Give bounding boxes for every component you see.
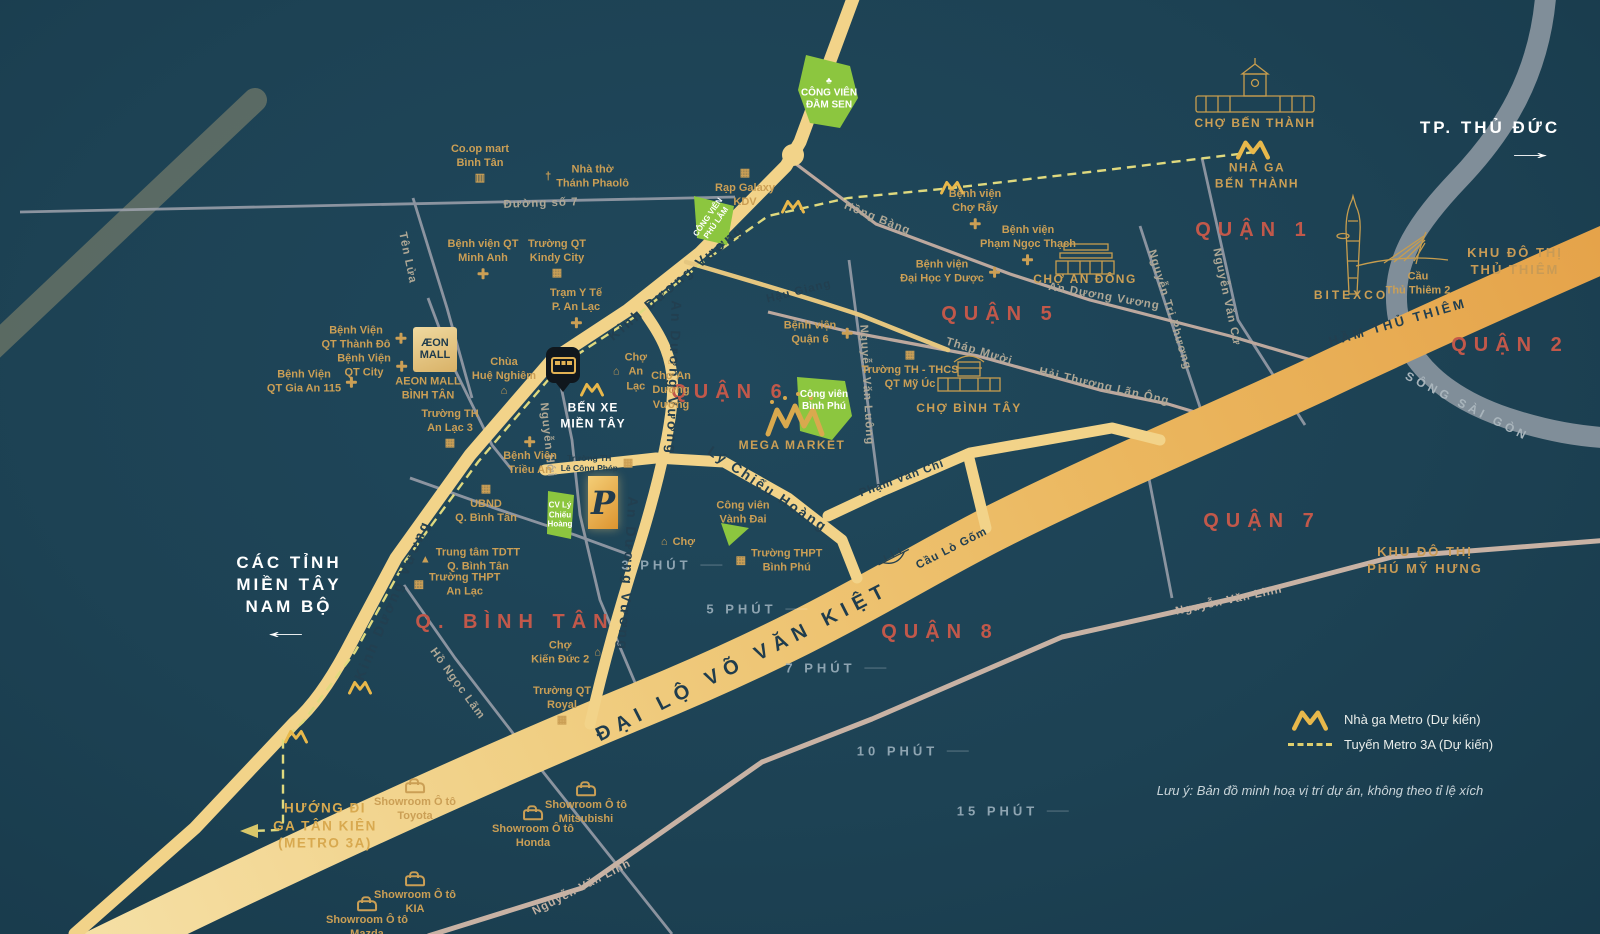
road-cau-lo-gom-text: Cầu Lò Gốm	[914, 525, 991, 574]
poi-mega-market-text: MEGA MARKET	[739, 438, 846, 454]
district-quan-8: QUẬN 8	[881, 619, 999, 645]
dir-huong-di-ga-tan-kien: HƯỚNG ĐIGA TÂN KIÊN(METRO 3A)	[273, 800, 377, 853]
district-quan-7-text: QUẬN 7	[1203, 508, 1321, 534]
poi-truong-qt-royal-text: Royal	[533, 699, 591, 713]
district-quan-7: QUẬN 7	[1203, 508, 1321, 534]
arrow-left-icon: ←	[258, 623, 320, 642]
legend-metro-station: Nhà ga Metro (Dự kiến)	[1288, 708, 1493, 731]
minute-15: 15 PHÚT	[957, 804, 1069, 821]
cross-icon	[989, 267, 1000, 278]
road-ten-lua: Tên Lửa	[394, 231, 420, 285]
minute-10-text: 10 PHÚT	[857, 744, 969, 761]
river-song-sai-gon-text: SÔNG SÀI GÒN	[1402, 369, 1531, 445]
poi-truong-thpt-an-lac-text: An Lạc	[429, 585, 500, 599]
poi-bitexco: BITEXCO	[1314, 288, 1388, 304]
poi-benh-vien-trieu-an: Bệnh ViệnTriều An	[503, 436, 557, 478]
poi-cho: ⌂Chợ	[661, 535, 695, 549]
poi-tram-y-te-p-an-lac-text: Trạm Y Tế	[550, 286, 602, 300]
district-quan-5: QUẬN 5	[941, 301, 1059, 327]
poi-coop-mart-binh-tan-text: Co.op mart	[451, 142, 509, 156]
poi-truong-thpt-binh-phu-text: Trường THPT	[751, 547, 822, 561]
cart-icon: ▥	[475, 173, 485, 184]
poi-cho-text: Chợ	[673, 535, 695, 549]
poi-chua-hue-nghiem-text: Huệ Nghiêm	[472, 370, 536, 384]
poi-truong-th-an-lac-3-text: Trường TH	[421, 407, 478, 421]
poi-cho-ben-thanh: CHỢ BẾN THÀNH	[1194, 116, 1315, 132]
cross-icon	[396, 333, 407, 344]
dir-huong-di-ga-tan-kien-text: GA TÂN KIÊN	[273, 817, 377, 835]
dir-huong-di-ga-tan-kien-text: HƯỚNG ĐI	[273, 800, 377, 818]
park-label-binh-phu-text: Bình Phú	[800, 401, 848, 413]
poi-cho-an-lac-text: Chợ	[625, 351, 647, 365]
car-icon	[576, 785, 596, 796]
location-map: QUẬN 1QUẬN 2QUẬN 5QUẬN 6QUẬN 7QUẬN 8Q. B…	[0, 0, 1600, 934]
road-nguyen-van-linh-south: Nguyễn Văn Linh	[530, 857, 634, 920]
river-song-sai-gon: SÔNG SÀI GÒN	[1402, 369, 1531, 445]
poi-benh-vien-qt-minh-anh-text: Bệnh viện QT	[448, 237, 519, 251]
poi-showroom-mazda: Showroom Ô tôMazda	[326, 894, 408, 934]
poi-benh-vien-qt-gia-an-115-text: QT Gia An 115	[267, 382, 341, 396]
road-duong-so-7: Đường số 7	[503, 195, 579, 213]
poi-cho-kien-duc-2-text: Chợ	[531, 639, 589, 653]
poi-truong-thpt-binh-phu: ▦Trường THPTBình Phú	[736, 547, 823, 576]
district-quan-8-text: QUẬN 8	[881, 619, 999, 645]
district-q-binh-tan-text: Q. BÌNH TÂN	[415, 609, 614, 635]
poi-cho-an-duong-vuong-text: Vương	[651, 398, 691, 412]
school-icon: ▦	[557, 715, 567, 726]
poi-truong-th-thcs-qt-my-uc-text: Trường TH - THCS	[861, 363, 958, 377]
building-icon: ▦	[481, 484, 491, 495]
aeon-logo-text: ÆON	[421, 338, 449, 350]
area-thu-thiem-text: THỦ THIÊM	[1467, 262, 1563, 279]
metro-station-icon	[1288, 708, 1332, 731]
car-icon	[405, 875, 425, 886]
poi-nha-ga-ben-thanh: NHÀ GABẾN THÀNH	[1215, 160, 1299, 191]
cross-icon	[969, 218, 980, 229]
park-label-dam-sen-text: CÔNG VIÊN	[801, 88, 857, 100]
poi-benh-vien-trieu-an-text: Bệnh Viện	[503, 449, 557, 463]
poi-chua-hue-nghiem: ChùaHuệ Nghiêm⌂	[472, 355, 536, 397]
poi-ubnd-q-binh-tan: ▦UBNDQ. Bình Tân	[455, 484, 517, 526]
school-icon: ▦	[414, 580, 424, 591]
park-label-cv-ly-chieu-hoang-text: Hoàng	[548, 520, 573, 530]
sport-icon: ▲	[420, 555, 431, 566]
poi-aeon-mall-binh-tan: AEON MALLBÌNH TÂN	[395, 375, 460, 404]
park-label-dam-sen-text: ĐẦM SEN	[801, 100, 857, 112]
market-icon: ⌂	[668, 356, 675, 367]
area-phu-my-hung-text: PHÚ MỸ HƯNG	[1367, 561, 1483, 578]
poi-showroom-mazda-text: Showroom Ô tô	[326, 913, 408, 927]
poi-tram-y-te-p-an-lac: Trạm Y TếP. An Lạc	[550, 286, 602, 328]
dir-tp-thu-duc: TP. THỦ ĐỨC→	[1420, 117, 1560, 163]
road-hai-thuong-lan-ong: Hải Thượng Lãn Ông	[1037, 365, 1170, 410]
poi-showroom-honda-text: Showroom Ô tô	[492, 822, 574, 836]
poi-showroom-toyota: Showroom Ô tôToyota	[374, 776, 456, 824]
aeon-mall-logo: ÆON MALL	[413, 327, 457, 372]
car-icon	[357, 900, 377, 911]
poi-aeon-mall-binh-tan-text: AEON MALL	[395, 375, 460, 389]
poi-benh-vien-qt-thanh-do: Bệnh ViệnQT Thành Đô	[321, 324, 406, 353]
poi-truong-qt-kindy-city-text: Trường QT	[528, 237, 586, 251]
poi-cho-binh-tay-text: CHỢ BÌNH TÂY	[916, 401, 1022, 417]
poi-cho-binh-tay: CHỢ BÌNH TÂY	[916, 401, 1022, 417]
poi-benh-vien-pham-ngoc-thach-text: Phạm Ngọc Thạch	[980, 238, 1076, 252]
school-icon: ▦	[623, 459, 633, 470]
poi-cho-kien-duc-2: ChợKiến Đức 2⌂	[531, 639, 601, 668]
tree-icon: ♣	[826, 77, 832, 86]
poi-ubnd-q-binh-tan-text: UBND	[455, 497, 517, 511]
school-icon: ▦	[736, 556, 746, 567]
poi-cho-an-dong-text: CHỢ AN ĐÔNG	[1033, 272, 1137, 288]
legend-metro-line: Tuyến Metro 3A (Dự kiến)	[1288, 737, 1493, 752]
cross-icon	[1023, 254, 1034, 265]
road-kinh-duong-vuong-lower-text: Kinh Dương Vương	[350, 517, 434, 683]
poi-truong-thpt-binh-phu-text: Bình Phú	[751, 561, 822, 575]
ben-xe-mien-tay-pin	[546, 347, 580, 383]
poi-showroom-toyota-text: Toyota	[374, 810, 456, 824]
poi-cho-an-lac: ⌂ChợAnLạc	[613, 351, 647, 394]
park-label-cv-ly-chieu-hoang-text: CV Lý	[548, 501, 573, 511]
legend: Nhà ga Metro (Dự kiến) Tuyến Metro 3A (D…	[1288, 708, 1493, 752]
poi-truong-qt-kindy-city-text: Kindy City	[528, 252, 586, 266]
poi-benh-vien-quan-6-text: Quận 6	[784, 333, 837, 347]
dir-cac-tinh-mien-tay-nam-bo-text: MIỀN TÂY	[236, 574, 341, 596]
poi-cho-an-duong-vuong-text: Chợ An	[651, 369, 691, 383]
poi-benh-vien-dai-hoc-y-duoc-text: Đại Học Y Dược	[900, 272, 984, 286]
road-nguyen-van-cu: Nguyễn Văn Cừ	[1208, 247, 1243, 347]
car-icon	[405, 782, 425, 793]
minute-5-text: 5 PHÚT	[706, 602, 807, 619]
poi-aeon-mall-binh-tan-text: BÌNH TÂN	[395, 389, 460, 403]
road-cau-lo-gom: Cầu Lò Gốm	[914, 525, 991, 574]
poi-benh-vien-dai-hoc-y-duoc: Bệnh việnĐại Học Y Dược	[900, 258, 1000, 287]
dir-cac-tinh-mien-tay-nam-bo: CÁC TỈNHMIỀN TÂYNAM BỘ←	[236, 552, 341, 642]
bus-icon	[551, 357, 576, 374]
poi-nha-tho-thanh-phaolo: †Nhà thờThánh Phaolô	[545, 163, 629, 192]
district-quan-2: QUẬN 2	[1451, 332, 1569, 358]
road-hong-bang-text: Hồng Bàng	[842, 199, 913, 239]
area-thu-thiem: KHU ĐÔ THỊTHỦ THIÊM	[1467, 245, 1563, 279]
poi-benh-vien-qt-thanh-do-text: QT Thành Đô	[321, 338, 390, 352]
poi-cho-an-duong-vuong: ⌂Chợ AnDươngVương	[651, 356, 691, 412]
area-phu-my-hung: KHU ĐÔ THỊPHÚ MỸ HƯNG	[1367, 544, 1483, 578]
school-icon: ▦	[445, 438, 455, 449]
cross-icon	[346, 377, 357, 388]
poi-cau-thu-thiem-2: CầuThủ Thiêm 2	[1386, 270, 1451, 299]
school-icon: ▦	[905, 350, 915, 361]
road-kinh-duong-vuong-lower: Kinh Dương Vương	[350, 517, 434, 683]
poi-showroom-honda-text: Honda	[492, 837, 574, 851]
poi-rap-galaxy-kdv-text: Rạp Galaxy	[715, 181, 775, 195]
road-duong-so-7-text: Đường số 7	[503, 195, 579, 213]
metro-line-dash-icon	[1288, 743, 1332, 746]
poi-benh-vien-pham-ngoc-thach-text: Bệnh viện	[980, 223, 1076, 237]
car-icon	[523, 809, 543, 820]
road-hau-giang: Hậu Giang	[765, 277, 833, 308]
poi-cong-vien-vanh-dai-text: Vành Đai	[716, 513, 769, 527]
poi-cho-an-dong: CHỢ AN ĐÔNG	[1033, 272, 1137, 288]
poi-nha-ga-ben-thanh-text: BẾN THÀNH	[1215, 176, 1299, 192]
road-ten-lua-text: Tên Lửa	[394, 231, 420, 285]
poi-benh-vien-cho-ray-text: Bệnh viện	[949, 187, 1002, 201]
park-label-dam-sen: ♣CÔNG VIÊNĐẦM SEN	[801, 77, 857, 112]
park-label-binh-phu-text: Công viên	[800, 389, 848, 401]
legend-metro-station-label: Nhà ga Metro (Dự kiến)	[1344, 712, 1481, 727]
poi-truong-thpt-an-lac: ▦Trường THPTAn Lạc	[414, 571, 501, 600]
minute-15-text: 15 PHÚT	[957, 804, 1069, 821]
poi-cho-an-lac-text: An	[625, 365, 647, 379]
poi-benh-vien-dai-hoc-y-duoc-text: Bệnh viện	[900, 258, 984, 272]
park-label-cv-ly-chieu-hoang-text: Chiếu	[548, 510, 573, 520]
road-pham-van-chi: Phạm Văn Chí	[857, 457, 946, 502]
poi-benh-vien-quan-6: Bệnh việnQuận 6	[784, 319, 853, 348]
road-ho-ngoc-lam: Hồ Ngọc Lãm	[426, 645, 488, 723]
cross-icon	[841, 328, 852, 339]
poi-chua-hue-nghiem-text: Chùa	[472, 355, 536, 369]
poi-truong-thpt-an-lac-text: Trường THPT	[429, 571, 500, 585]
pagoda-icon: ⌂	[501, 386, 508, 397]
area-phu-my-hung-text: KHU ĐÔ THỊ	[1367, 544, 1483, 561]
arrow-right-icon: →	[1503, 144, 1565, 163]
project-logo: P	[588, 476, 618, 529]
poi-showroom-toyota-text: Showroom Ô tô	[374, 795, 456, 809]
park-label-cv-ly-chieu-hoang: CV LýChiếuHoàng	[548, 501, 573, 530]
road-nguyen-van-linh-south-text: Nguyễn Văn Linh	[530, 857, 634, 920]
market-icon: ⌂	[613, 366, 620, 377]
road-hong-bang: Hồng Bàng	[842, 199, 913, 239]
cross-icon	[478, 268, 489, 279]
market-icon: ⌂	[594, 648, 601, 659]
map-note: Lưu ý: Bản đồ minh hoạ vị trí dự án, khô…	[1130, 783, 1510, 798]
poi-mega-market: MEGA MARKET	[739, 438, 846, 454]
poi-ubnd-q-binh-tan-text: Q. Bình Tân	[455, 512, 517, 526]
road-hau-giang-text: Hậu Giang	[765, 277, 833, 308]
poi-truong-th-le-cong-phep-text: Lê Công Phép	[561, 464, 618, 474]
poi-cong-vien-vanh-dai-text: Công viên	[716, 499, 769, 513]
park-label-binh-phu: Công viênBình Phú	[800, 389, 848, 413]
poi-truong-qt-royal-text: Trường QT	[533, 684, 591, 698]
poi-truong-th-thcs-qt-my-uc-text: QT Mỹ Úc	[861, 378, 958, 392]
poi-coop-mart-binh-tan-text: Bình Tân	[451, 157, 509, 171]
poi-truong-qt-royal: Trường QTRoyal▦	[533, 684, 591, 726]
poi-cau-thu-thiem-2-text: Cầu	[1386, 270, 1451, 284]
poi-benh-vien-qt-gia-an-115-text: Bệnh Viện	[267, 368, 341, 382]
poi-benh-vien-quan-6-text: Bệnh viện	[784, 319, 837, 333]
dir-cac-tinh-mien-tay-nam-bo-text: NAM BỘ	[236, 596, 341, 618]
district-quan-5-text: QUẬN 5	[941, 301, 1059, 327]
dir-tp-thu-duc-text: TP. THỦ ĐỨC	[1420, 117, 1560, 139]
poi-benh-vien-qt-minh-anh-text: Minh Anh	[448, 252, 519, 266]
dir-cac-tinh-mien-tay-nam-bo-text: CÁC TỈNH	[236, 552, 341, 574]
poi-showroom-honda: Showroom Ô tôHonda	[492, 803, 574, 851]
poi-truong-th-an-lac-3: Trường THAn Lạc 3▦	[421, 407, 478, 449]
minute-7-text: 7 PHÚT	[785, 661, 886, 678]
poi-cho-ben-thanh-text: CHỢ BẾN THÀNH	[1194, 116, 1315, 132]
poi-nha-tho-thanh-phaolo-text: Nhà thờ	[556, 163, 629, 177]
poi-benh-vien-cho-ray-text: Chợ Rẫy	[949, 202, 1002, 216]
poi-truong-th-an-lac-3-text: An Lạc 3	[421, 422, 478, 436]
minute-5: 5 PHÚT	[706, 602, 807, 619]
district-quan-1-text: QUẬN 1	[1195, 217, 1313, 243]
poi-coop-mart-binh-tan: Co.op martBình Tân▥	[451, 142, 509, 184]
district-quan-1: QUẬN 1	[1195, 217, 1313, 243]
poi-cho-kien-duc-2-text: Kiến Đức 2	[531, 653, 589, 667]
district-q-binh-tan: Q. BÌNH TÂN	[415, 609, 614, 635]
poi-ben-xe-mien-tay-text: BẾN XE	[560, 400, 625, 416]
poi-truong-th-thcs-qt-my-uc: ▦Trường TH - THCSQT Mỹ Úc	[861, 350, 958, 392]
road-hai-thuong-lan-ong-text: Hải Thượng Lãn Ông	[1037, 365, 1170, 410]
church-icon: †	[545, 172, 551, 183]
poi-truong-qt-kindy-city: Trường QTKindy City▦	[528, 237, 586, 279]
poi-benh-vien-qt-minh-anh: Bệnh viện QTMinh Anh	[448, 237, 519, 279]
poi-ben-xe-mien-tay: BẾN XEMIỀN TÂY	[560, 400, 625, 431]
cross-icon	[396, 361, 407, 372]
market-icon: ⌂	[661, 536, 668, 547]
poi-cau-thu-thiem-2-text: Thủ Thiêm 2	[1386, 284, 1451, 298]
poi-bitexco-text: BITEXCO	[1314, 288, 1388, 304]
project-logo-letter: P	[591, 484, 615, 522]
poi-ben-xe-mien-tay-text: MIỀN TÂY	[560, 416, 625, 432]
legend-metro-line-label: Tuyến Metro 3A (Dự kiến)	[1344, 737, 1493, 752]
minute-10: 10 PHÚT	[857, 744, 969, 761]
poi-cho-an-duong-vuong-text: Dương	[651, 383, 691, 397]
poi-nha-tho-thanh-phaolo-text: Thánh Phaolô	[556, 177, 629, 191]
district-quan-2-text: QUẬN 2	[1451, 332, 1569, 358]
school-icon: ▦	[552, 268, 562, 279]
road-pham-van-chi-text: Phạm Văn Chí	[857, 457, 946, 502]
poi-nha-ga-ben-thanh-text: NHÀ GA	[1215, 160, 1299, 176]
aeon-logo-text: MALL	[420, 350, 451, 362]
cross-icon	[571, 317, 582, 328]
poi-benh-vien-qt-thanh-do-text: Bệnh Viện	[321, 324, 390, 338]
cross-icon	[525, 436, 536, 447]
road-nguyen-van-cu-text: Nguyễn Văn Cừ	[1208, 247, 1243, 347]
poi-trung-tam-tdtt-q-binh-tan-text: Trung tâm TDTT	[436, 546, 520, 560]
road-nguyen-van-linh-east: Nguyễn Văn Linh	[1174, 582, 1284, 619]
poi-showroom-mazda-text: Mazda	[326, 928, 408, 934]
poi-benh-vien-qt-city-text: Bệnh Viện	[337, 352, 391, 366]
road-nguyen-van-linh-east-text: Nguyễn Văn Linh	[1174, 582, 1284, 619]
poi-cho-an-lac-text: Lạc	[625, 379, 647, 393]
poi-cong-vien-vanh-dai: Công viênVành Đai	[716, 499, 769, 528]
dir-huong-di-ga-tan-kien-text: (METRO 3A)	[273, 835, 377, 853]
poi-truong-th-le-cong-phep: Trường THLê Công Phép▦	[561, 454, 634, 474]
poi-tram-y-te-p-an-lac-text: P. An Lạc	[550, 301, 602, 315]
road-ho-ngoc-lam-text: Hồ Ngọc Lãm	[426, 645, 488, 723]
cinema-icon: ▦	[740, 168, 750, 179]
minute-7: 7 PHÚT	[785, 661, 886, 678]
poi-benh-vien-qt-gia-an-115: Bệnh ViệnQT Gia An 115	[267, 368, 357, 397]
poi-benh-vien-trieu-an-text: Triều An	[503, 464, 557, 478]
area-thu-thiem-text: KHU ĐÔ THỊ	[1467, 245, 1563, 262]
